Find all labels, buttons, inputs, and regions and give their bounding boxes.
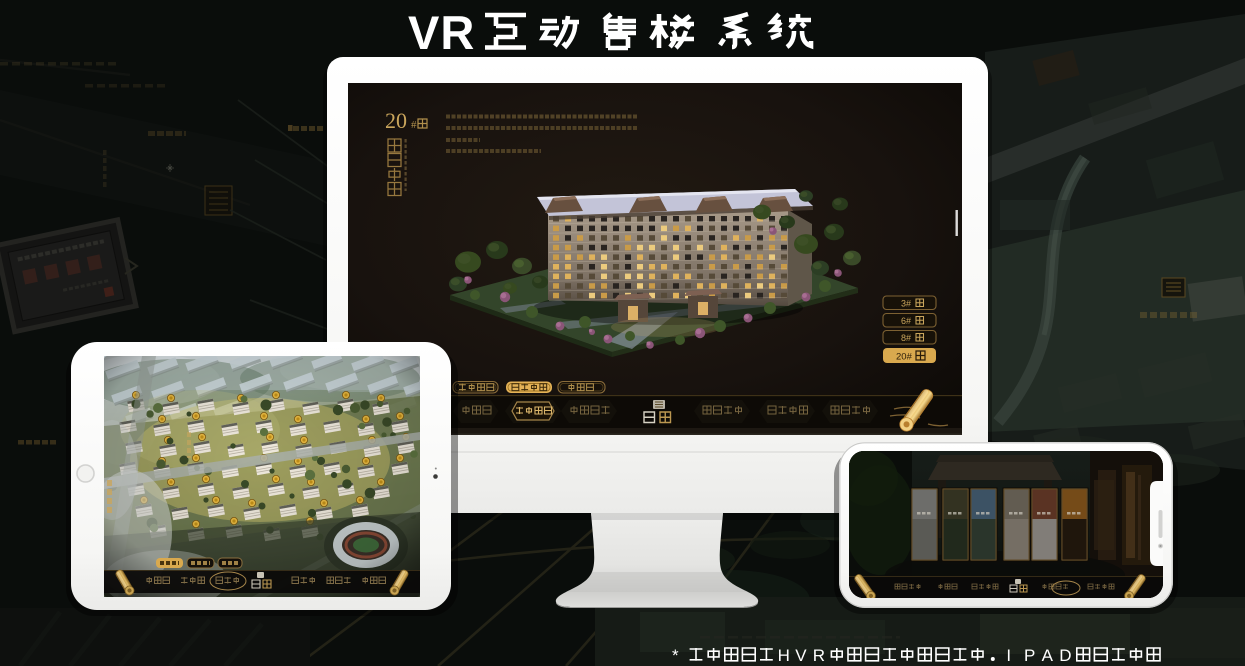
svg-text:P: P [1024,646,1035,665]
svg-text:H: H [778,646,790,665]
svg-text:20#: 20# [896,352,913,363]
svg-text:8#: 8# [901,333,911,343]
svg-text:R: R [813,646,825,665]
svg-text:6#: 6# [901,316,911,326]
svg-text:20: 20 [385,108,407,133]
svg-text:D: D [1059,646,1071,665]
svg-text:A: A [1042,646,1054,665]
svg-text:I: I [1006,646,1011,665]
svg-text:#: # [411,119,417,131]
svg-text:*: * [672,646,679,665]
svg-text:VR: VR [408,6,475,59]
svg-text:V: V [795,646,807,665]
svg-text:3#: 3# [901,299,911,309]
